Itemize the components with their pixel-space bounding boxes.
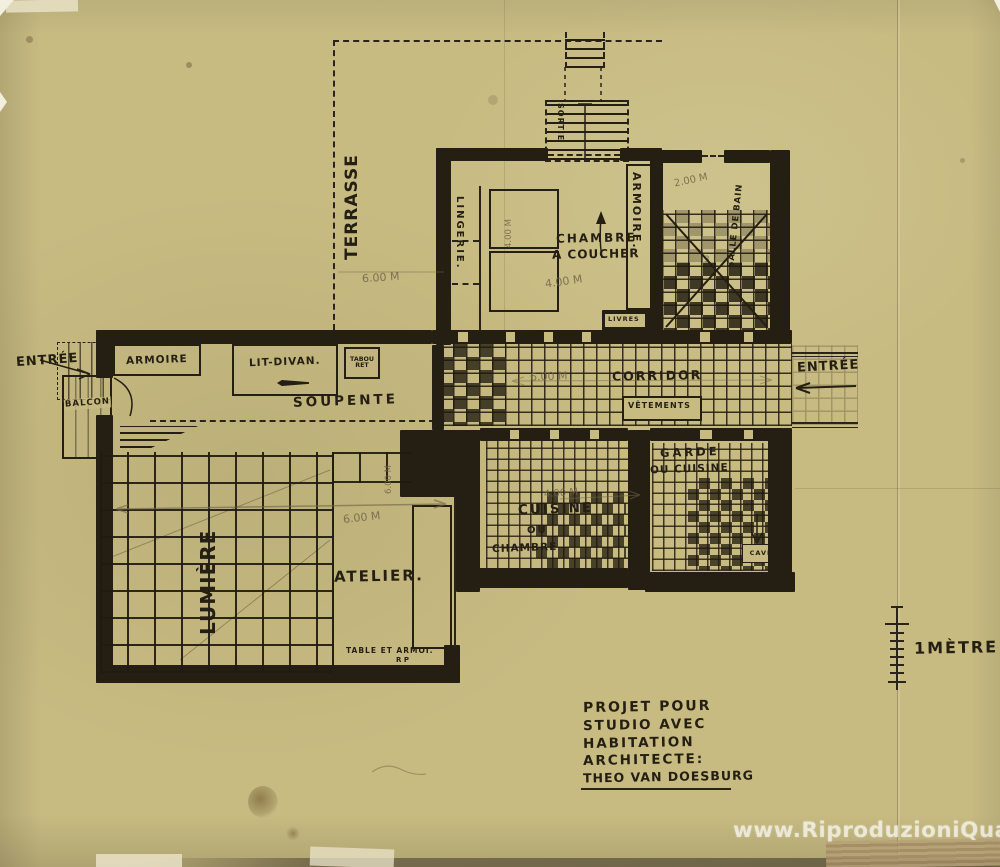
bedroom-wall-top-left [436,148,548,161]
lit-divan-box [232,344,338,396]
bedroom-door-dash [548,154,620,156]
garde-wall-right [768,430,792,592]
floor-plan-sheet: TERRASSE 6.00 M SORTIE LINGERIE. 4.00 M … [0,0,1000,867]
wall-gap-3 [544,332,553,342]
scale-tick-6 [890,672,904,674]
scale-tick-2 [890,640,904,642]
terrasse-dimension: 6.00 M [362,271,400,285]
corridor-checker-left [440,344,506,426]
bath-checker-lower [664,263,770,330]
exit-stair-upper-flight [565,32,605,68]
chambre-label-line1: CHAMBRE [556,231,637,244]
vetements-label: VÊTEMENTS [628,402,691,410]
wall-gap-1 [458,332,468,342]
speck-3 [960,158,965,163]
terrasse-label: TERRASSE [344,110,361,260]
corridor-wall-top-left [96,330,432,344]
armoire-right-label: ARMOIRE. [631,172,642,302]
bain-number: 3 [704,256,710,265]
garde-door-gap-2 [744,430,753,439]
scale-tick-3 [890,648,904,650]
entree-right-label: ENTRÉE [797,358,860,374]
corridor-dimension: 6.00 M [530,370,568,382]
terrasse-boundary-left [333,40,335,330]
table-label-line1: TABLE ET ARMOI. [346,647,433,655]
bed-dimension-vertical: 4.00 M [505,196,514,248]
lit-divan-label: LIT-DIVAN. [249,356,321,369]
paper-fold-highlight [898,0,900,867]
title-line-1: PROJET POUR [583,699,712,715]
soupente-wall-right-stub [432,345,444,430]
speck-2 [26,36,33,43]
cuisine-label-line2: OU [527,526,548,536]
atelier-dimension-vertical: 6.00 M [385,442,394,494]
atelier-corner-bottom-right [444,645,460,683]
scale-tick-top [891,606,903,608]
scale-tick-bottom [888,681,906,683]
garde-wall-bottom [645,572,795,592]
title-line-4: ARCHITECTE: [583,753,704,769]
sortie-label: SORTIE [556,103,564,157]
terrasse-boundary-top [333,40,662,42]
speck-4 [488,95,498,105]
wall-gap-4 [582,332,591,342]
table-label-line2: R P [396,657,409,664]
wall-gap-2 [506,332,515,342]
lingerie-divider [479,186,481,332]
bath-door-dash [702,155,724,157]
left-wall-upper [96,330,113,378]
atelier-wall-right-thin [454,497,456,647]
garde-label-line1: GARDE [660,446,720,460]
tabouret-label-line2: RET [355,363,368,369]
kitchen-wall-right [628,430,650,590]
title-line-5: THEO VAN DOESBURG [583,770,754,785]
kitchen-wall-bottom [470,568,628,588]
ink-stain-large [248,786,278,818]
bath-wall-right [770,150,790,333]
watermark: www.RiproduzioniQuadri.it [733,818,1000,843]
table-armoire-rect [412,505,452,649]
cuisine-label-line1: CUISINE [518,502,594,518]
title-line-2: STUDIO AVEC [583,718,707,734]
corridor-label: CORRIDOR [612,369,703,383]
lumiere-label: LUMIÈRE [198,485,218,635]
armoire-left-box: ARMOIRE [113,344,201,376]
bed-upper [489,189,559,249]
scale-tick-major [885,623,909,625]
tape-bottom-center [310,847,395,867]
scale-tick-5 [890,664,904,666]
vestibule-wall-line-1 [792,352,858,354]
scale-label: 1MÈTRE [914,639,998,656]
bath-wall-top-left [650,150,702,163]
scale-tick-1 [890,632,904,634]
paper-crease-horizontal [795,488,1000,489]
lingerie-label: LINGERIE. [454,196,464,331]
speck-1 [186,62,192,68]
garde-door-gap-1 [700,430,712,439]
garde-label-line2: OU CUISINE [650,463,729,476]
kitchen-door-gap-1 [510,430,519,439]
cuisine-label-line3: CHAMBRE [492,542,558,555]
vestibule-wall-line-3 [792,422,858,424]
vestibule-wall-line-2 [792,356,858,357]
kitchen-door-gap-2 [550,430,559,439]
livres-label: LIVRES [608,316,640,323]
corridor-wall-top-right [432,330,792,344]
title-line-3: HABITATION [583,736,695,751]
bath-checker-upper [664,210,770,265]
tape-bottom-left [96,854,182,867]
armoire-left-label: ARMOIRE [126,354,188,367]
scale-tick-4 [890,656,904,658]
tabouret-box: TABOU RET [344,347,380,379]
tape-top-left [6,0,78,13]
title-underline [581,788,731,790]
ink-stain-small [286,826,300,841]
soupente-edge-dash [150,420,445,422]
wall-gap-5 [700,332,710,342]
vestibule-wall-line-4 [792,427,858,428]
kitchen-door-gap-3 [590,430,599,439]
atelier-label: ATELIER. [334,568,424,585]
skylight-grid-extension [332,452,412,483]
wall-gap-6 [744,332,753,342]
bedroom-wall-left [436,148,451,345]
